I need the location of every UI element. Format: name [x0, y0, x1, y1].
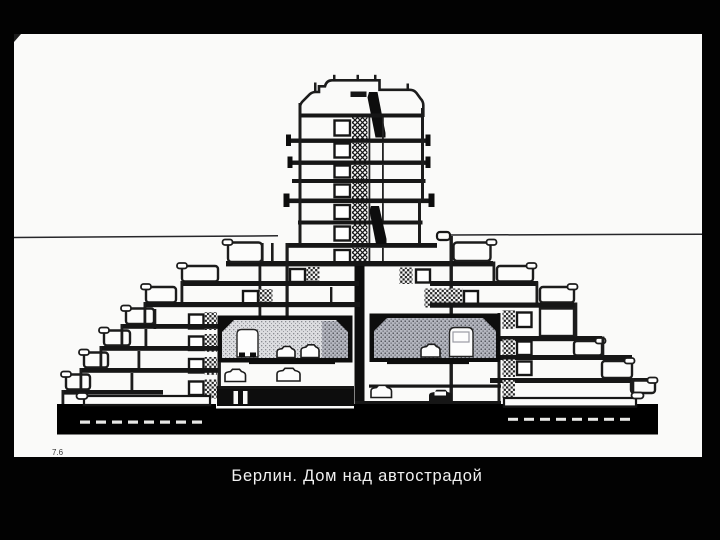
svg-text:7.6: 7.6 [52, 448, 64, 457]
